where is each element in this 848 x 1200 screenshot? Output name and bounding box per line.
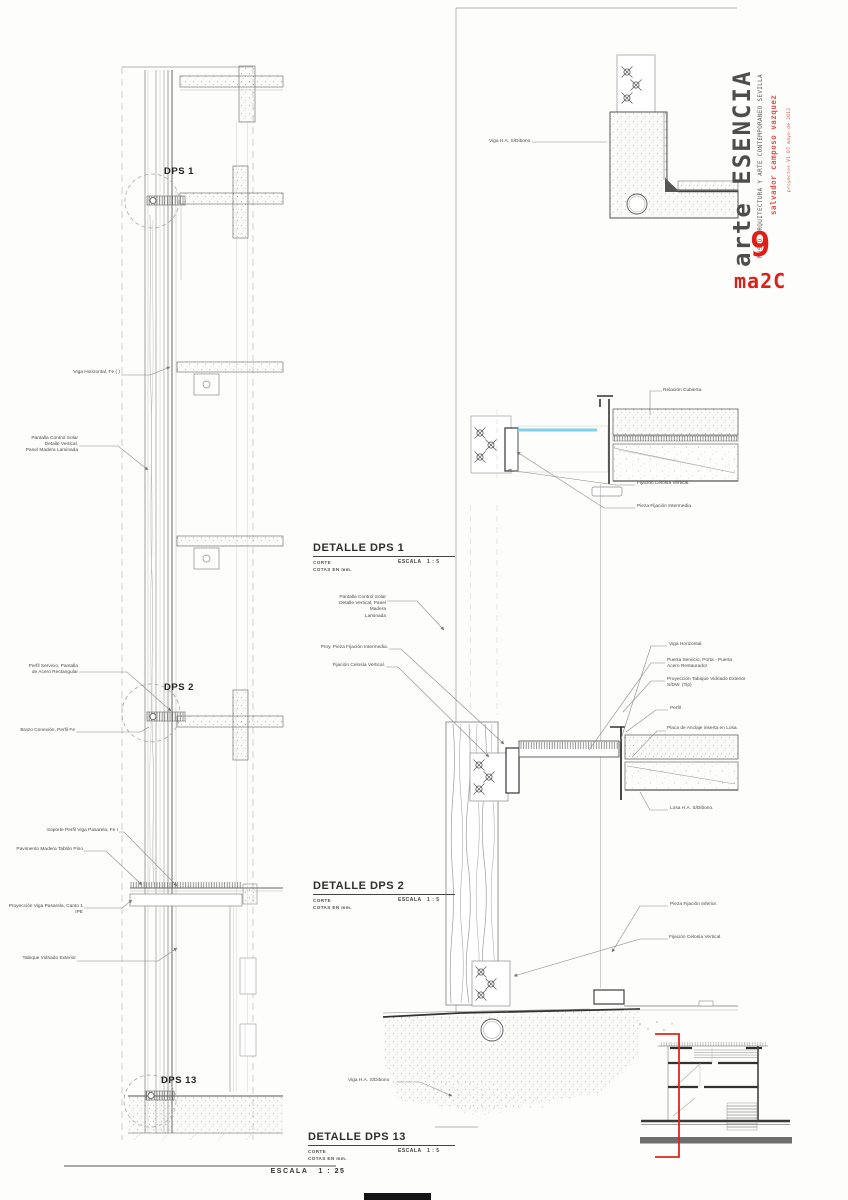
left-facade-section [64, 66, 336, 1166]
annotation-label: Pavimento Madera Tablón Pino [14, 847, 83, 853]
walkway-slab [130, 882, 283, 1092]
annotation-label: Placa de Anclaje inserta en Losa. [667, 726, 738, 732]
detail-scale-dps2: ESCALA 1 : 5 [398, 897, 440, 903]
page-edge-bar [364, 1193, 431, 1200]
detail-dps1-drawing [471, 396, 738, 496]
annotation-label: Viga Horizontal. [669, 642, 703, 648]
annotation-label: Brazo Conexión, Perfil Fe [14, 728, 75, 734]
drawing-sheet: Viga Horizontal, Fe ( ) Pantalla Control… [0, 0, 848, 1200]
annotation-label: Relación Cubierta. [663, 388, 702, 394]
annotation-label: Perfil [670, 706, 681, 712]
annotation-label: Viga H.A. S/Dibono [489, 139, 530, 145]
floor-junction-top [180, 66, 283, 122]
annotation-label: Fijación Celosía Vertical. [328, 663, 385, 669]
studio-logo: ma2C [734, 271, 786, 291]
detail-units-dps13: COTAS EN mm. [308, 1156, 347, 1161]
annotation-label: Proy. Pieza Fijación Intermedia. [316, 645, 388, 651]
course-date: proyectos VI 07 mayo de 2012 [787, 108, 792, 192]
annotation-label: Puerta Servicio, Porta - Puerta Acero Re… [667, 658, 732, 670]
annotation-label: Viga Horizontal, Fe ( ) [20, 370, 120, 376]
detail-scale-dps1: ESCALA 1 : 5 [398, 559, 440, 565]
annotation-label: Fijación Celosía Vertical. [637, 481, 690, 487]
annotation-label: Tabique Vidriado Exterior [14, 956, 76, 962]
annotation-label: Perfil Servicio, Pantalla de Acero Recta… [18, 664, 78, 676]
annotation-label: Pieza Fijación Inferior. [670, 902, 717, 908]
annotation-label: Proyección Tabique Vidriado Exterior S/D… [667, 677, 745, 689]
annotation-label: Soporte Perfil Viga Pasarela, Fe I [14, 828, 118, 834]
detail-units-dps1: COTAS EN mm. [313, 567, 352, 572]
detail-units-dps2: COTAS EN mm. [313, 905, 352, 910]
detail-type-dps1: CORTE [313, 560, 331, 565]
annotation-label: Pantalla Control Solar Detalle Vertical,… [322, 595, 386, 620]
annotation-label: Pantalla Control Solar Detalle Vertical,… [18, 436, 78, 455]
key-plan-section [639, 1021, 792, 1157]
floor-slab-mid1 [177, 362, 283, 395]
callout-dps2: DPS 2 [164, 682, 194, 693]
annotation-label: Proyección Viga Pasarela, Canto 1 IPE [8, 904, 83, 916]
detail-scale-dps13: ESCALA 1 : 5 [398, 1148, 440, 1154]
floor-junction-dps2 [122, 684, 283, 760]
floor-slab-mid2 [177, 536, 283, 569]
callout-dps1: DPS 1 [164, 166, 194, 177]
detail-title-dps13: DETALLE DPS 13 [308, 1131, 455, 1146]
annotation-label: Pieza Fijación Intermedia. [637, 504, 692, 510]
annotation-label: Losa H.A. S/Dibono. [670, 806, 713, 812]
right-detail-drawings [383, 8, 738, 1127]
callout-dps13: DPS 13 [161, 1075, 197, 1086]
annotation-label: Viga H.A. S/Dibono [348, 1078, 389, 1084]
detail-dps2-drawing [470, 727, 738, 801]
sheet-number: 9 [750, 228, 770, 262]
detail-title-dps1: DETALLE DPS 1 [313, 542, 455, 557]
parapet-detail [532, 55, 738, 218]
detail-title-dps2: DETALLE DPS 2 [313, 880, 455, 895]
annotation-label: Fijación Celosía Vertical. [669, 935, 722, 941]
plan-speckles [639, 1021, 672, 1030]
left-annotation-leaders [76, 367, 177, 961]
floor-junction-dps1 [125, 166, 283, 280]
section-linework [0, 0, 848, 1200]
author-name: salvador camposo vazquez [769, 95, 778, 215]
sheet-scale-label: ESCALA 1 : 25 [228, 1168, 388, 1175]
detail-type-dps13: CORTE [308, 1149, 326, 1154]
detail-type-dps2: CORTE [313, 898, 331, 903]
